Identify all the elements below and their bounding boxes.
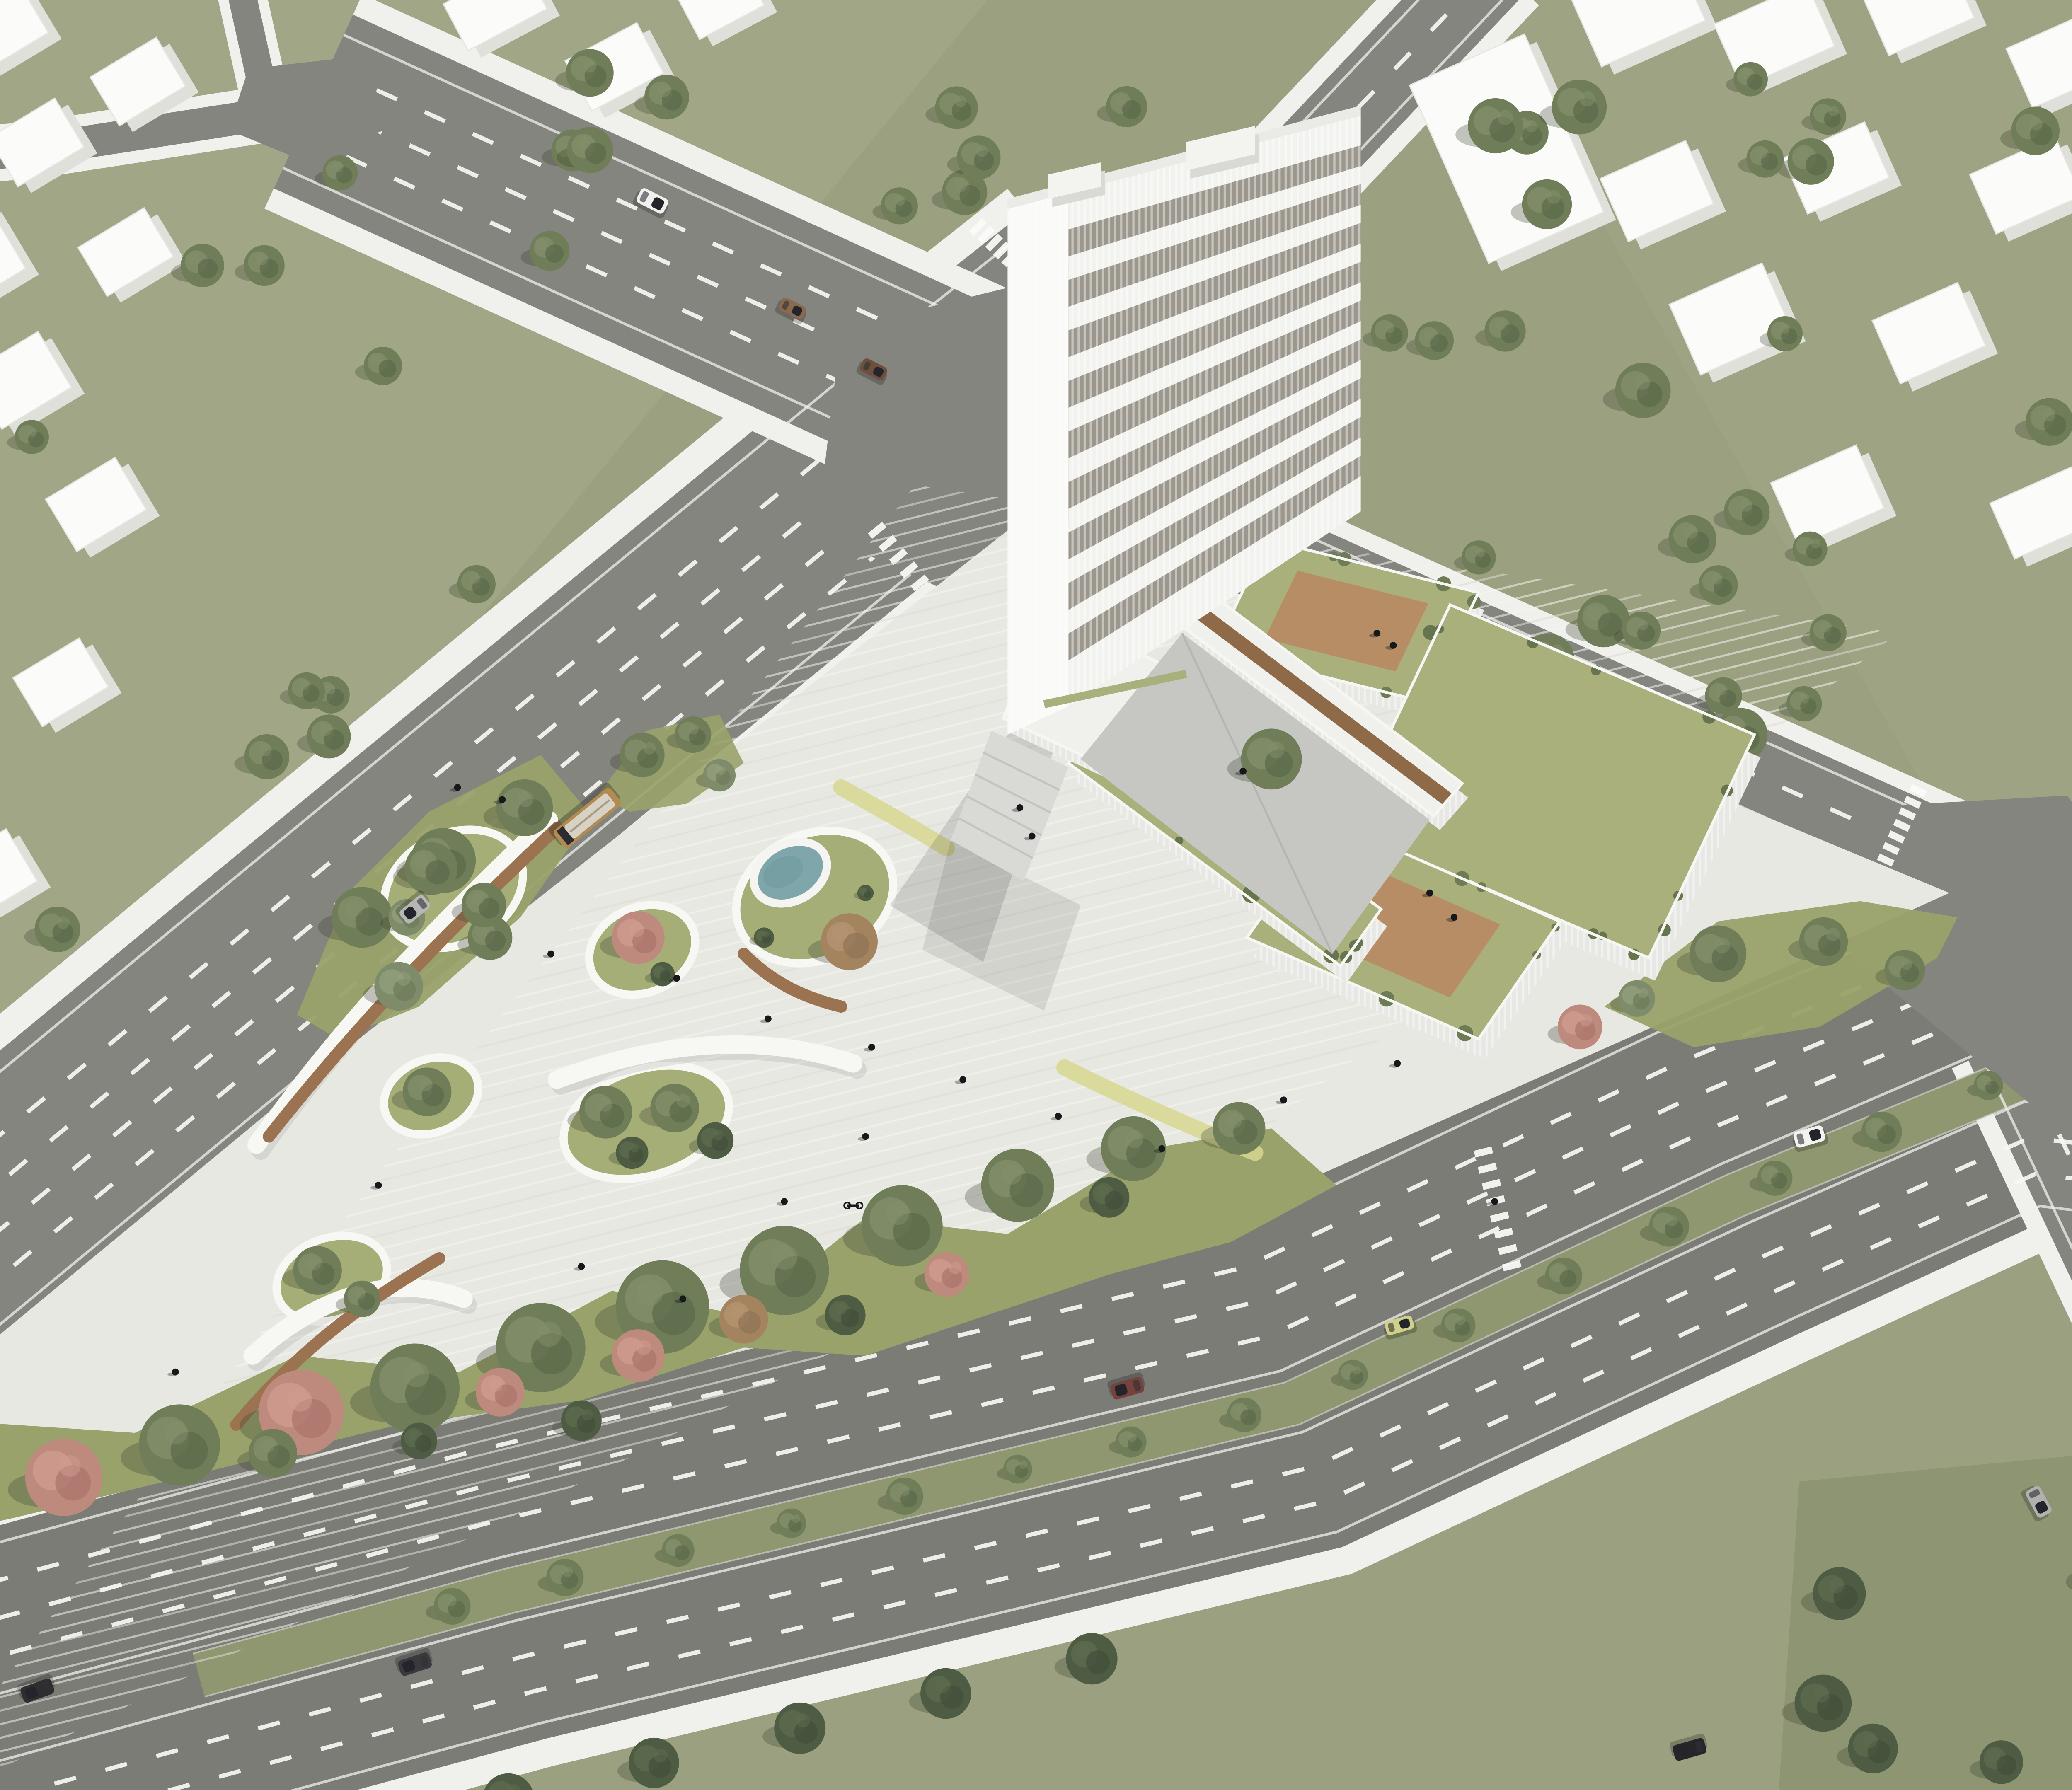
person	[1491, 1198, 1498, 1205]
tree-highlight	[1456, 1316, 1465, 1325]
tree-highlight	[796, 1713, 810, 1728]
tree-highlight	[637, 1340, 651, 1355]
person	[862, 1133, 869, 1140]
tree-highlight	[975, 145, 988, 157]
tree-shade	[198, 259, 218, 278]
tree-highlight	[59, 1455, 81, 1477]
tree-highlight	[259, 744, 271, 756]
tree-highlight	[1002, 1164, 1022, 1184]
tree-highlight	[307, 1256, 321, 1270]
tree-shade	[1086, 1650, 1110, 1674]
tree-highlight	[355, 1288, 365, 1299]
person	[1280, 1096, 1287, 1103]
tree-highlight	[677, 1094, 690, 1108]
tree-highlight	[1826, 928, 1840, 941]
tree-highlight	[1525, 120, 1537, 132]
tree-highlight	[1864, 1734, 1878, 1748]
tree-highlight	[658, 84, 671, 97]
tree-highlight	[472, 892, 484, 905]
tree-highlight	[188, 253, 200, 265]
tree-highlight	[1125, 1130, 1143, 1148]
tree-highlight	[1638, 988, 1648, 998]
tree-highlight	[345, 900, 362, 917]
person	[499, 796, 506, 803]
person	[679, 1295, 686, 1302]
tree-highlight	[1227, 1113, 1242, 1128]
tree-shade	[675, 1545, 690, 1560]
tree-highlight	[1757, 148, 1767, 159]
person	[1374, 630, 1381, 637]
tree-highlight	[333, 163, 343, 173]
tree-highlight	[1476, 547, 1485, 557]
tree-highlight	[1580, 91, 1595, 106]
tree-highlight	[298, 680, 309, 690]
tree-highlight	[772, 1245, 797, 1270]
tree-highlight	[1424, 329, 1435, 340]
person	[547, 951, 554, 958]
tree-highlight	[1268, 741, 1285, 758]
tree-highlight	[900, 1485, 910, 1496]
tree-highlight	[1796, 148, 1809, 161]
tree-highlight	[716, 766, 726, 775]
tree-shade	[1240, 1409, 1256, 1425]
person	[1055, 1113, 1062, 1120]
tree-highlight	[537, 1322, 562, 1347]
tree-highlight	[630, 1143, 639, 1152]
tree-highlight	[165, 1422, 188, 1444]
tree-highlight	[1635, 374, 1650, 389]
person	[1158, 1145, 1165, 1152]
tree-highlight	[469, 573, 480, 584]
tree-highlight	[1019, 1461, 1028, 1469]
tree-highlight	[637, 1280, 663, 1306]
person	[1394, 1060, 1401, 1067]
tree-highlight	[2042, 408, 2055, 421]
tree-highlight	[763, 932, 769, 938]
tree-highlight	[1234, 1405, 1243, 1415]
tree-highlight	[1716, 685, 1726, 695]
tree-highlight	[832, 925, 848, 941]
tree-highlight	[1820, 622, 1831, 632]
tree-highlight	[1587, 606, 1601, 620]
person	[673, 975, 680, 982]
tree-highlight	[1495, 319, 1506, 331]
tree-highlight	[1799, 694, 1809, 704]
tree-highlight	[1116, 95, 1127, 106]
tree-highlight	[325, 684, 335, 694]
aerial-render-canvas	[0, 0, 2072, 1790]
tree-highlight	[261, 1439, 275, 1453]
tree-highlight	[397, 972, 411, 986]
tree-highlight	[371, 355, 382, 365]
tree-highlight	[713, 1130, 724, 1140]
tree-highlight	[446, 1596, 457, 1606]
tree-highlight	[1988, 1749, 2000, 1762]
person	[1451, 914, 1458, 921]
tree-highlight	[1829, 1578, 1844, 1593]
tree-highlight	[1075, 1644, 1090, 1658]
tree-highlight	[1385, 322, 1395, 333]
tree-highlight	[489, 1378, 502, 1392]
tree-highlight	[1767, 1168, 1777, 1178]
tree-shade	[660, 970, 671, 982]
tree-highlight	[936, 1679, 950, 1693]
tree-highlight	[1741, 69, 1750, 79]
tree-highlight	[1098, 1185, 1109, 1197]
tree-highlight	[955, 95, 967, 107]
tree-highlight	[1901, 958, 1912, 970]
tree-highlight	[583, 59, 597, 72]
tree-highlight	[1128, 1433, 1137, 1442]
tree-highlight	[27, 427, 37, 437]
tree-highlight	[2029, 117, 2043, 131]
tree-highlight	[689, 724, 699, 734]
person	[1390, 642, 1397, 649]
person	[765, 1015, 772, 1022]
tree-highlight	[886, 1202, 909, 1225]
tree-highlight	[654, 967, 661, 974]
tree-highlight	[644, 742, 656, 755]
tree-highlight	[731, 1305, 745, 1319]
tree-highlight	[288, 1388, 312, 1412]
tree-shade	[425, 860, 450, 885]
tree-highlight	[1982, 1077, 1991, 1085]
tree-highlight	[536, 239, 547, 251]
tree-shade	[379, 360, 397, 377]
tree-highlight	[256, 254, 268, 265]
person	[868, 1044, 875, 1051]
person	[959, 1076, 966, 1083]
tree-highlight	[1353, 1366, 1361, 1374]
tree-highlight	[577, 137, 590, 150]
tree-highlight	[419, 1078, 433, 1091]
tree-highlight	[792, 1515, 800, 1523]
person	[1016, 804, 1023, 811]
tree-shade	[485, 931, 506, 951]
tree-highlight	[598, 1097, 612, 1112]
person	[375, 1182, 382, 1189]
person	[1426, 890, 1433, 897]
tree-highlight	[404, 1362, 429, 1387]
tree-highlight	[949, 1262, 961, 1274]
person	[172, 1369, 179, 1376]
person	[1029, 833, 1036, 840]
person	[1239, 768, 1247, 775]
tree-highlight	[1780, 324, 1790, 334]
tree-highlight	[1685, 525, 1698, 539]
tree-highlight	[1714, 937, 1730, 953]
tree-highlight	[1813, 1686, 1830, 1703]
tree-highlight	[582, 1409, 593, 1420]
person	[781, 1198, 788, 1205]
tree-highlight	[835, 1303, 847, 1314]
tree-highlight	[1740, 499, 1752, 512]
tower-sw-fins	[1007, 191, 1068, 735]
person	[578, 1263, 585, 1270]
tree-highlight	[1871, 1120, 1882, 1131]
tree-highlight	[1498, 110, 1513, 125]
tree-highlight	[667, 1541, 676, 1550]
tree-highlight	[1547, 190, 1561, 204]
tree-highlight	[57, 916, 70, 929]
tree-highlight	[1553, 1265, 1563, 1276]
tree-highlight	[1666, 1215, 1677, 1226]
tree-highlight	[1580, 1014, 1592, 1026]
tree-highlight	[862, 888, 867, 893]
tree-highlight	[895, 195, 905, 206]
person	[454, 784, 461, 791]
tree-highlight	[1711, 573, 1722, 585]
tree-highlight	[409, 1430, 420, 1441]
tree-highlight	[414, 853, 429, 868]
tree-shade	[545, 244, 564, 263]
tree-highlight	[1811, 539, 1821, 549]
tree-highlight	[955, 179, 968, 192]
tree-highlight	[1638, 619, 1648, 630]
tree-highlight	[562, 1567, 573, 1577]
tree-highlight	[319, 724, 332, 736]
tree-highlight	[1828, 106, 1839, 116]
tree-highlight	[629, 922, 644, 937]
tree-highlight	[518, 791, 533, 807]
tree-highlight	[654, 1748, 668, 1762]
